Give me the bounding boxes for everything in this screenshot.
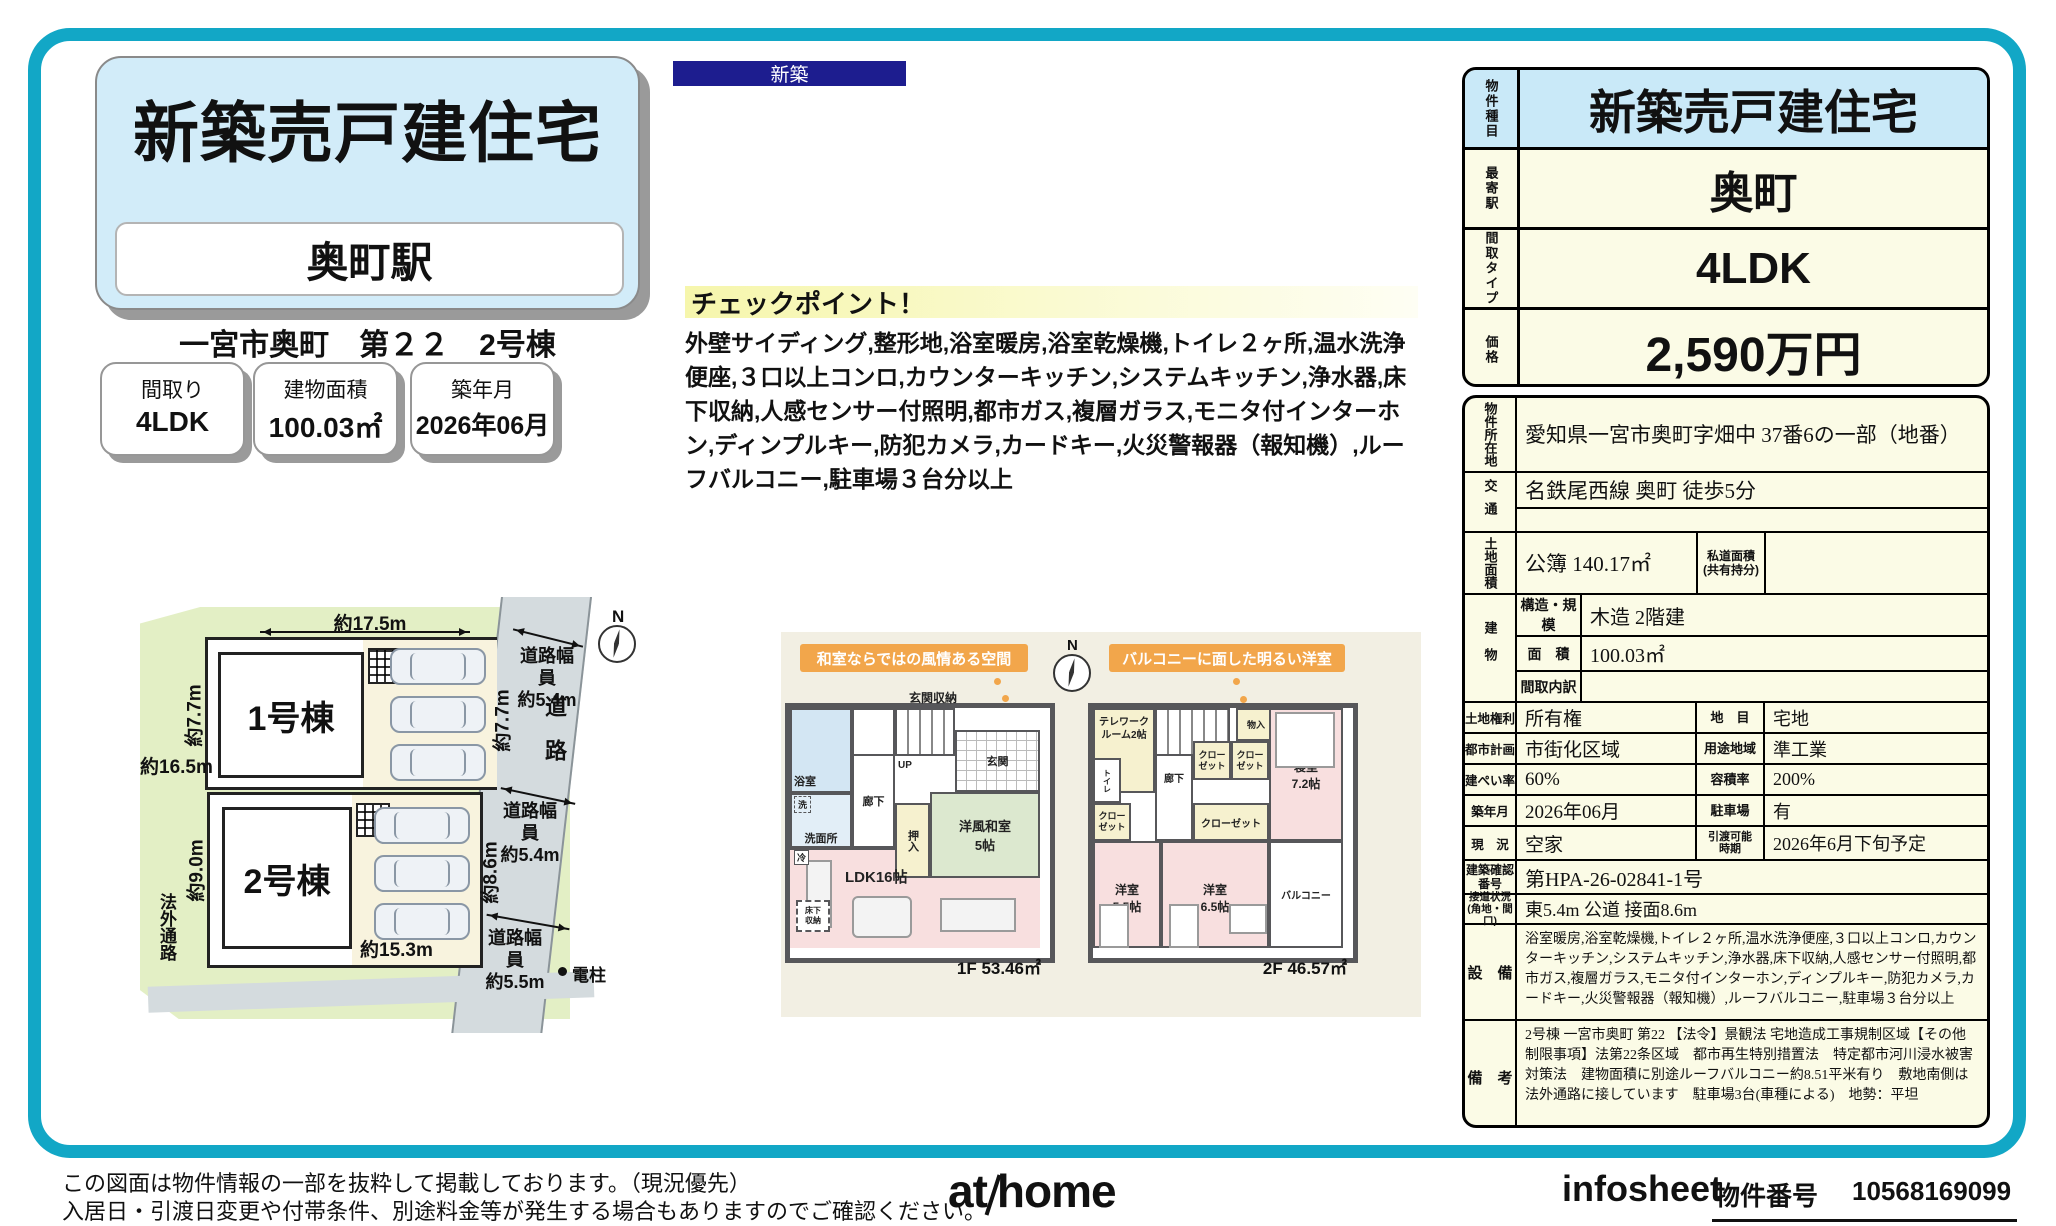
dim-bottom: 約15.3m: [360, 935, 433, 962]
entrance-storage-label: 玄関収納: [909, 689, 957, 706]
row-value: 60%: [1517, 765, 1697, 794]
closet-a: クロー ゼット: [1193, 741, 1231, 780]
utility-pole-label: 電柱: [572, 961, 606, 986]
callout-connector-dot: [1002, 695, 1009, 702]
stairs-up-label: UP: [898, 760, 912, 771]
sub-value: 木造 2階建: [1582, 595, 1987, 635]
callout-connector-dot: [1240, 696, 1247, 703]
details-table: 物件所在地 愛知県一宮市奥町字畑中 37番6の一部（地番） 交通 名鉄尾西線 奥…: [1462, 395, 1990, 1128]
closet-d: クローゼット: [1193, 803, 1269, 841]
summary-label: 間取タイプ: [1465, 230, 1520, 307]
spec-label: 建物面積: [255, 374, 396, 404]
row-road-contact: 接道状況 (角地・間口) 東5.4m 公道 接面8.6m: [1465, 895, 1987, 925]
dim-left-upper: 約7.7m: [180, 684, 207, 746]
row-label: 建物: [1465, 595, 1517, 701]
car-icon: [390, 648, 486, 685]
floor-plan-1f: 浴室 UP 玄関 廊下 洗面所 洗 押入 洋風和室 5帖 LDK16帖 床下 収…: [785, 703, 1055, 963]
closet-c: クロー ゼット: [1093, 803, 1131, 841]
area-2f: 2F 46.57㎡: [1227, 954, 1347, 979]
compass-icon: [598, 625, 636, 663]
room-tatami: 洋風和室 5帖: [930, 792, 1040, 878]
row-value: 2026年06月: [1517, 796, 1697, 825]
row-value: 東5.4m 公道 接面8.6m: [1517, 895, 1987, 923]
row-value: 第HPA-26-02841-1号: [1517, 861, 1987, 893]
row-label-2: 地 目: [1697, 703, 1765, 732]
row-label: 備 考: [1465, 1021, 1517, 1128]
callout-connector-dot: [994, 678, 1001, 685]
closet-b: クロー ゼット: [1231, 741, 1269, 780]
area-1f: 1F 53.46㎡: [921, 954, 1041, 979]
checkpoint-body: 外壁サイディング,整形地,浴室暖房,浴室乾燥機,トイレ２ヶ所,温水洗浄便座,３口…: [685, 326, 1422, 496]
building-2-label: 2号棟: [244, 854, 331, 903]
row-label: 建築確認 番号: [1465, 861, 1517, 893]
row-label: 都市計画: [1465, 734, 1517, 763]
spec-label: 間取り: [102, 374, 243, 404]
row-label: 建ぺい率: [1465, 765, 1517, 794]
room-balcony: バルコニー: [1269, 841, 1343, 948]
room-hall-2f: 廊下: [1155, 756, 1193, 841]
bed-small: [1099, 904, 1129, 948]
row-access: 交通 名鉄尾西線 奥町 徒歩5分: [1465, 473, 1987, 533]
station-box: 奥町駅: [115, 222, 624, 296]
spec-value: 2026年06月: [412, 406, 553, 442]
row-value-2: 準工業: [1765, 734, 1987, 763]
floor-plans: 和室ならではの風情ある空間 バルコニーに面した明るい洋室 N 浴室 UP 玄関 …: [781, 632, 1421, 1017]
row-value: 愛知県一宮市奥町字畑中 37番6の一部（地番）: [1517, 398, 1987, 471]
outside-path-label: 法外通路: [154, 893, 179, 961]
road-label: 道路: [538, 695, 570, 783]
room-ldk-label: LDK16帖: [845, 866, 908, 887]
property-number-label: 物件番号: [1714, 1176, 1818, 1213]
dim-left-mid: 約16.5m: [140, 752, 213, 779]
row-value-2: 有: [1765, 796, 1987, 825]
row-label-2: 容積率: [1697, 765, 1765, 794]
row-land-rights: 土地権利 所有権 地 目 宅地: [1465, 703, 1987, 734]
stairs-up: [895, 708, 955, 756]
room-bath: 浴室: [790, 708, 852, 793]
row-value: 2号棟 一宮市奥町 第22 【法令】景観法 宅地造成工事規制区域【その他制限事項…: [1517, 1021, 1987, 1128]
callout-connector-dot: [1233, 678, 1240, 685]
dining-table: [852, 896, 912, 938]
sofa: [940, 898, 1016, 932]
row-label: 設 備: [1465, 925, 1517, 1019]
row-label: 接道状況 (角地・間口): [1465, 895, 1517, 923]
summary-value: 新築売戸建住宅: [1520, 70, 1987, 147]
callout-tatami: 和室ならではの風情ある空間: [800, 644, 1028, 672]
building-1: 1号棟: [218, 652, 364, 778]
summary-row-price: 価格 2,590万円: [1465, 310, 1987, 387]
row-location: 物件所在地 愛知県一宮市奥町字畑中 37番6の一部（地番）: [1465, 398, 1987, 473]
sub-label: 間取内訳: [1517, 672, 1582, 701]
athome-logo-at: at: [948, 1164, 987, 1218]
sub-value: [1582, 672, 1987, 701]
compass-needle: [1066, 658, 1077, 687]
north-letter: N: [612, 607, 624, 627]
row-land-area: 土地面積 公簿 140.17㎡ 私道面積 (共有持分): [1465, 533, 1987, 595]
property-number-value: 10568169099: [1852, 1176, 2011, 1213]
callout-balcony: バルコニーに面した明るい洋室: [1109, 644, 1345, 672]
bed-small: [1169, 904, 1199, 948]
bed: [1275, 712, 1335, 768]
summary-label: 最寄駅: [1465, 150, 1520, 227]
building-2: 2号棟: [222, 807, 352, 949]
compass-icon: [1053, 654, 1091, 692]
road-width-mid: 道路幅員 約5.4m: [495, 800, 565, 866]
row-remarks: 備 考 2号棟 一宮市奥町 第22 【法令】景観法 宅地造成工事規制区域【その他…: [1465, 1021, 1987, 1128]
fridge-label: 冷: [794, 850, 809, 865]
row-city-planning: 都市計画 市街化区域 用途地域 準工業: [1465, 734, 1987, 765]
summary-row-type: 物件種目 新築売戸建住宅: [1465, 70, 1987, 150]
property-type-title: 新築売戸建住宅: [97, 80, 638, 176]
athome-logo: at home: [948, 1164, 1116, 1218]
row-building: 建物 構造・規模 木造 2階建 面 積 100.03㎡ 間取内訳: [1465, 595, 1987, 703]
dim-left-lower: 約9.0m: [182, 839, 209, 901]
lot-2: 2号棟: [207, 792, 483, 968]
building-1-label: 1号棟: [248, 691, 335, 740]
row-label: 土地権利: [1465, 703, 1517, 732]
compass-needle: [611, 629, 622, 658]
lot-1: 1号棟: [205, 637, 497, 790]
spec-card-built: 築年月 2026年06月: [410, 362, 555, 456]
infosheet-label: infosheet: [1562, 1168, 1722, 1210]
spec-label: 築年月: [412, 374, 553, 404]
north-letter: N: [1067, 637, 1078, 654]
dim-right-upper: 約7.7m: [488, 689, 515, 751]
spec-card-layout: 間取り 4LDK: [100, 362, 245, 456]
sub-label: 構造・規模: [1517, 595, 1582, 635]
row-value: 名鉄尾西線 奥町 徒歩5分: [1517, 473, 1987, 507]
row-value-2: 200%: [1765, 765, 1987, 794]
room-toilet-2f: トイレ: [1093, 758, 1121, 803]
spec-card-area: 建物面積 100.03㎡: [253, 362, 398, 456]
row-label-2: 用途地域: [1697, 734, 1765, 763]
disclaimer-line-2: 入居日・引渡日変更や付帯条件、別途料金等が発生する場合もありますのでご確認くださ…: [62, 1194, 986, 1226]
utility-pole-dot: [558, 967, 567, 976]
car-icon: [390, 744, 486, 781]
underfloor-storage: 床下 収納: [796, 900, 830, 932]
summary-row-layout: 間取タイプ 4LDK: [1465, 230, 1987, 310]
summary-value: 2,590万円: [1520, 310, 1987, 387]
row-label: 現 況: [1465, 827, 1517, 859]
laundry-label: 洗: [794, 796, 811, 813]
title-card: 新築売戸建住宅 奥町駅: [95, 56, 640, 310]
checkpoint-band: チェックポイント！: [685, 286, 1418, 318]
private-road-label: 私道面積 (共有持分): [1698, 533, 1766, 593]
summary-label: 物件種目: [1465, 70, 1520, 147]
land-area-value: 公簿 140.17㎡: [1517, 533, 1698, 593]
row-coverage: 建ぺい率 60% 容積率 200%: [1465, 765, 1987, 796]
property-subtitle: 一宮市奥町 第２２ 2号棟: [95, 320, 640, 364]
row-equipment: 設 備 浴室暖房,浴室乾燥機,トイレ２ヶ所,温水洗浄便座,３口以上コンロ,カウン…: [1465, 925, 1987, 1021]
summary-value: 4LDK: [1520, 230, 1987, 307]
row-label-2: 引渡可能 時期: [1697, 827, 1765, 859]
floor-plan-2f: テレワーク ルーム2帖 DN 物入 寝室 7.2帖 クロー ゼット クロー ゼッ…: [1088, 703, 1358, 963]
row-current-status: 現 況 空家 引渡可能 時期 2026年6月下旬予定: [1465, 827, 1987, 861]
row-label: 築年月: [1465, 796, 1517, 825]
row-value: 空家: [1517, 827, 1697, 859]
room-hall-1f: 廊下: [852, 756, 895, 848]
station-name: 奥町駅: [306, 229, 432, 290]
row-value: 市街化区域: [1517, 734, 1697, 763]
summary-table: 物件種目 新築売戸建住宅 最寄駅 奥町 間取タイプ 4LDK 価格 2,590万…: [1462, 67, 1990, 387]
row-label-2: 駐車場: [1697, 796, 1765, 825]
site-plan: 1号棟 2号棟 約17.5m 約7.7m 約16.5m 約9.0m 約15.3m…: [140, 597, 752, 1033]
row-label: 物件所在地: [1465, 398, 1517, 471]
checkpoint-title: チェックポイント！: [685, 284, 925, 321]
desk: [1229, 904, 1267, 934]
car-icon: [390, 696, 486, 733]
row-value: 浴室暖房,浴室乾燥機,トイレ２ヶ所,温水洗浄便座,３口以上コンロ,カウンターキッ…: [1517, 925, 1987, 1019]
summary-row-station: 最寄駅 奥町: [1465, 150, 1987, 230]
row-built-date: 築年月 2026年06月 駐車場 有: [1465, 796, 1987, 827]
road-width-bottom: 道路幅員 約5.5m: [480, 927, 550, 993]
sub-value: 100.03㎡: [1582, 637, 1987, 670]
private-road-value: [1766, 533, 1987, 593]
room-entrance: 玄関: [955, 730, 1040, 792]
car-icon: [374, 807, 470, 844]
row-building-confirmation: 建築確認 番号 第HPA-26-02841-1号: [1465, 861, 1987, 895]
row-value: 所有権: [1517, 703, 1697, 732]
sub-label: 面 積: [1517, 637, 1582, 670]
row-label: 交通: [1465, 473, 1517, 531]
summary-label: 価格: [1465, 310, 1520, 387]
row-label: 土地面積: [1465, 533, 1517, 593]
row-value-2: 2026年6月下旬予定: [1765, 827, 1987, 859]
athome-logo-home: home: [997, 1164, 1116, 1218]
property-number: 物件番号 10568169099: [1712, 1176, 2017, 1222]
car-icon: [374, 855, 470, 892]
room-toilet-1f: [852, 708, 895, 756]
summary-value: 奥町: [1520, 150, 1987, 227]
new-construction-badge: 新築: [673, 61, 906, 86]
row-value-empty: [1517, 509, 1987, 531]
dim-line-top: [260, 631, 470, 633]
spec-value: 100.03㎡: [255, 406, 396, 446]
spec-value: 4LDK: [102, 406, 243, 438]
row-value-2: 宅地: [1765, 703, 1987, 732]
